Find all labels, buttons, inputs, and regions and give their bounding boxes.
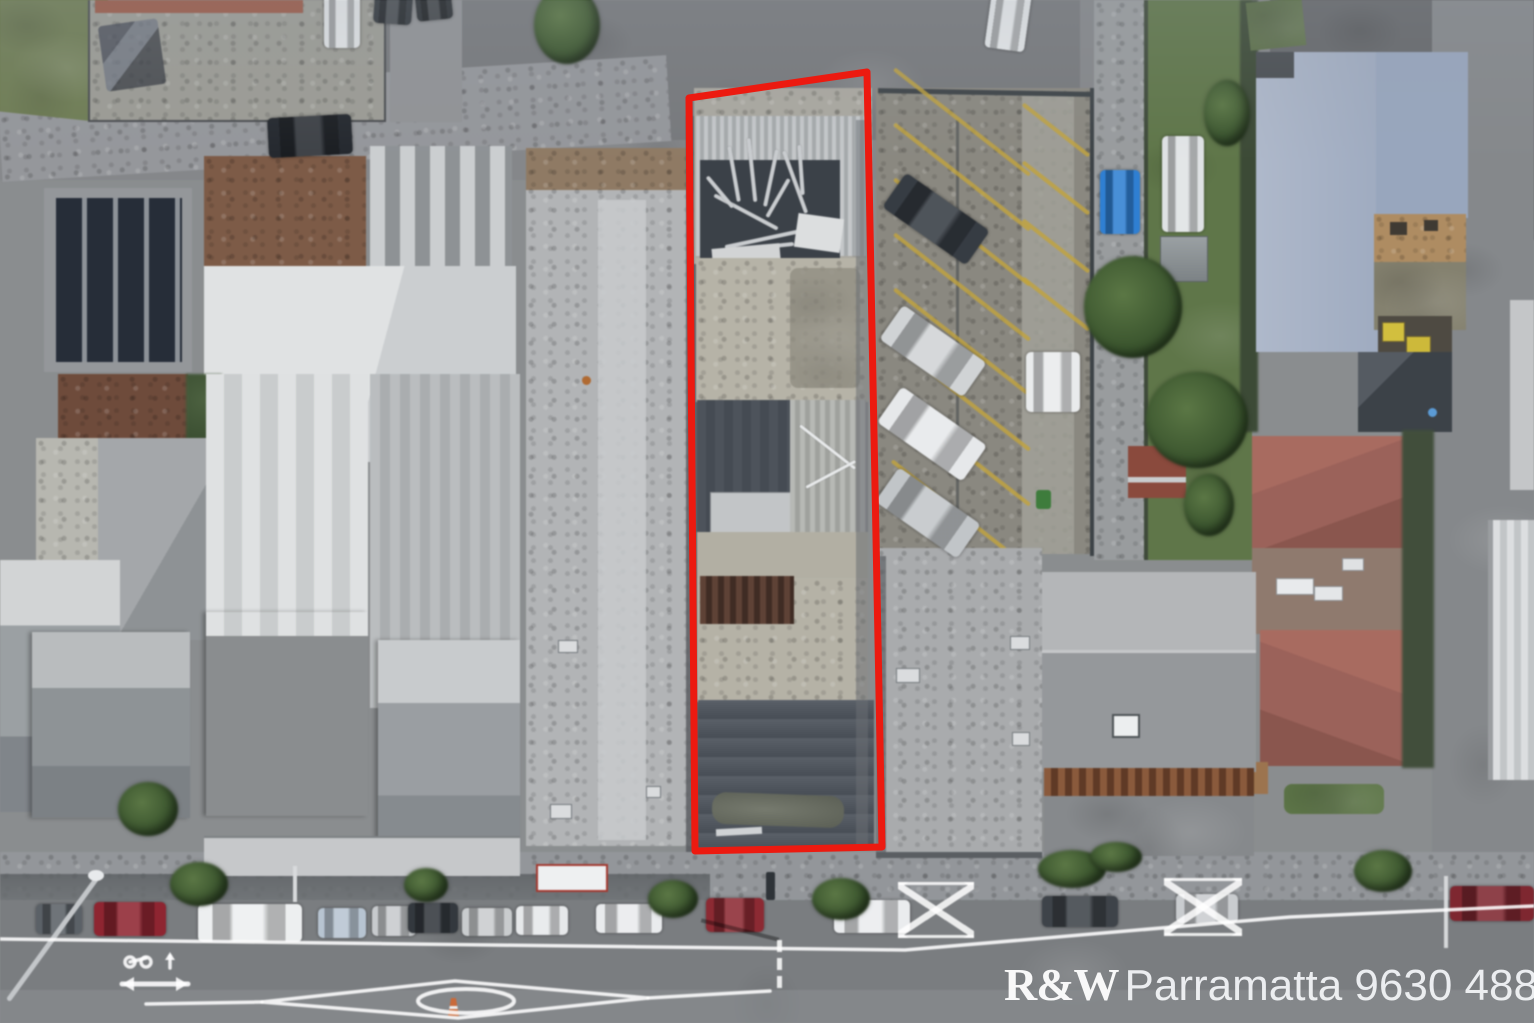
agency-logo-text: R&W <box>1004 959 1119 1010</box>
property-boundary <box>0 0 1534 1023</box>
agency-watermark: R&WParramatta 9630 4888 <box>1004 958 1534 1011</box>
property-boundary-line <box>689 72 882 851</box>
agency-contact-text: Parramatta 9630 4888 <box>1125 961 1534 1010</box>
aerial-photo-listing: R&WParramatta 9630 4888 <box>0 0 1534 1023</box>
